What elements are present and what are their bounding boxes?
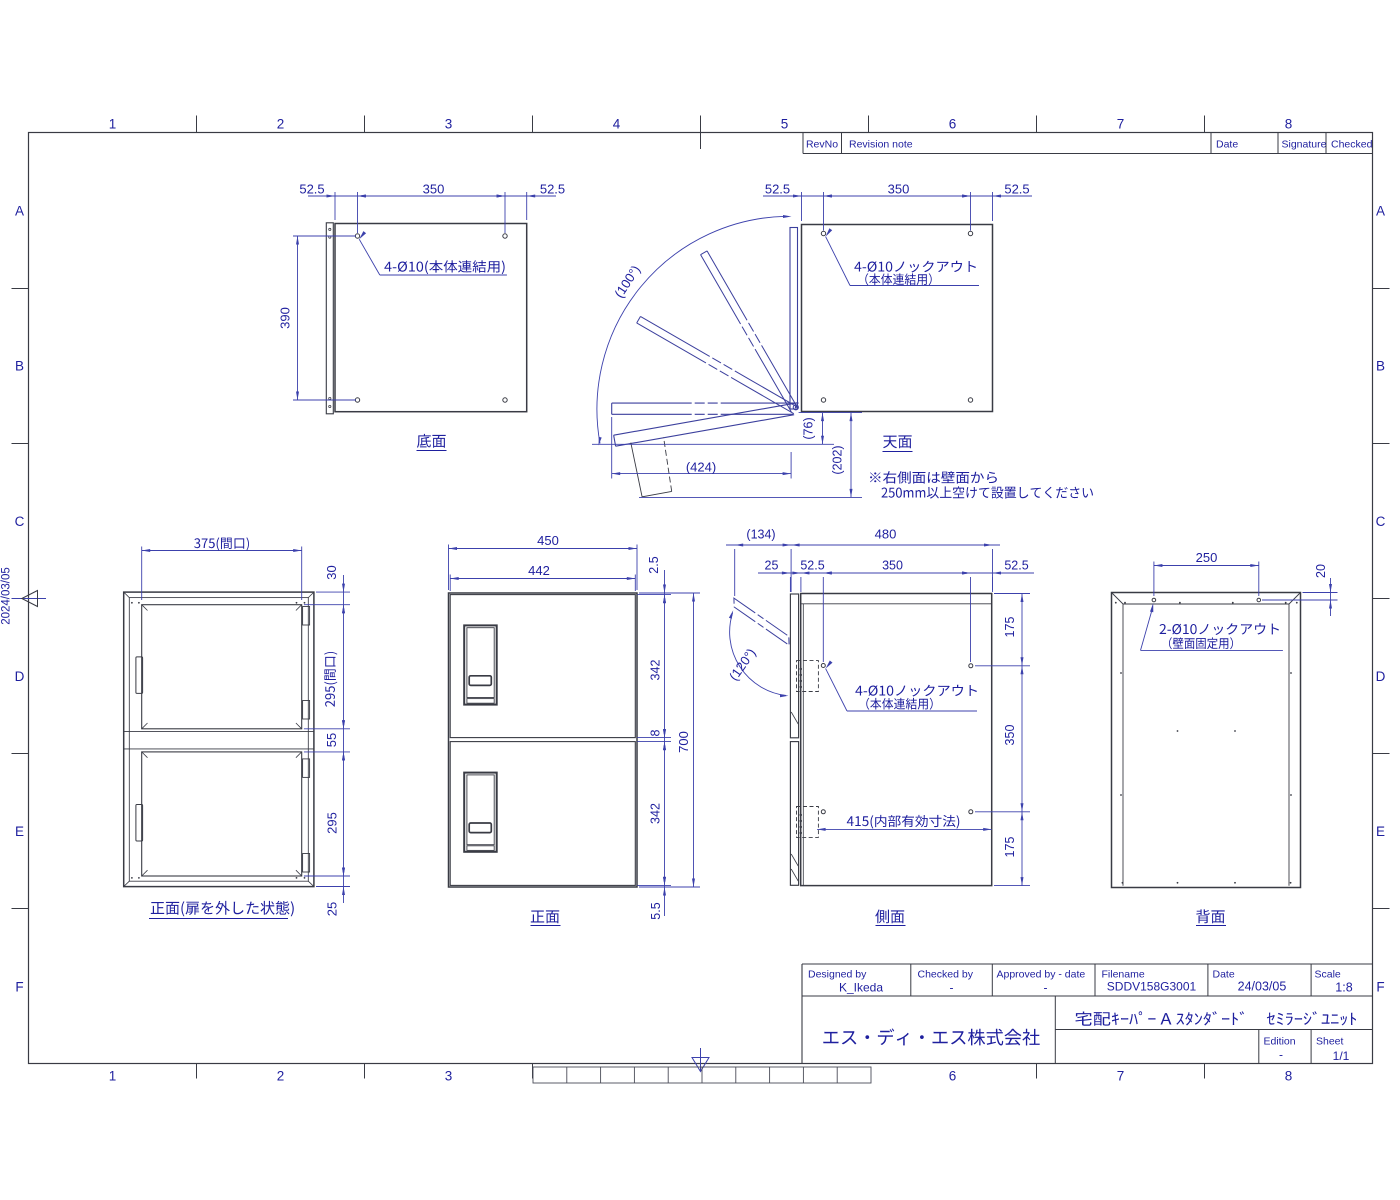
svg-text:342: 342 xyxy=(649,660,663,681)
svg-text:6: 6 xyxy=(949,117,957,132)
svg-text:A: A xyxy=(15,204,24,219)
svg-text:F: F xyxy=(15,979,23,994)
svg-text:5.5: 5.5 xyxy=(649,902,663,919)
svg-text:2.5: 2.5 xyxy=(647,556,661,573)
svg-text:-: - xyxy=(1279,1048,1283,1062)
svg-text:(424): (424) xyxy=(686,460,716,475)
svg-text:350: 350 xyxy=(888,182,910,197)
svg-text:6: 6 xyxy=(949,1069,957,1084)
svg-text:25: 25 xyxy=(765,559,779,573)
svg-text:Approved by - date: Approved by - date xyxy=(997,969,1086,981)
svg-text:1: 1 xyxy=(109,1069,117,1084)
svg-text:25: 25 xyxy=(325,902,340,916)
svg-text:B: B xyxy=(1376,359,1385,374)
svg-text:52.5: 52.5 xyxy=(1004,559,1028,573)
svg-text:(134): (134) xyxy=(746,528,775,542)
svg-text:175: 175 xyxy=(1003,617,1017,638)
svg-text:Checked by: Checked by xyxy=(918,969,974,981)
svg-text:20: 20 xyxy=(1314,564,1328,578)
svg-text:250: 250 xyxy=(1196,550,1218,565)
svg-text:B: B xyxy=(15,359,24,374)
svg-text:A: A xyxy=(1376,204,1385,219)
svg-text:8: 8 xyxy=(1285,1069,1293,1084)
svg-text:D: D xyxy=(15,669,25,684)
svg-text:Edition: Edition xyxy=(1264,1036,1296,1048)
svg-text:Checked: Checked xyxy=(1331,139,1373,151)
svg-text:RevNo: RevNo xyxy=(806,139,838,151)
svg-text:3: 3 xyxy=(445,117,453,132)
svg-text:E: E xyxy=(1376,824,1385,839)
svg-text:52.5: 52.5 xyxy=(1004,182,1029,197)
svg-text:-: - xyxy=(950,981,954,995)
svg-text:1:8: 1:8 xyxy=(1335,981,1352,995)
svg-text:8: 8 xyxy=(1285,117,1293,132)
svg-text:7: 7 xyxy=(1117,117,1125,132)
svg-text:52.5: 52.5 xyxy=(299,182,324,197)
svg-text:295: 295 xyxy=(325,812,340,834)
svg-text:1/1: 1/1 xyxy=(1333,1049,1350,1063)
svg-text:30: 30 xyxy=(324,565,339,579)
svg-text:Date: Date xyxy=(1216,139,1238,151)
svg-text:442: 442 xyxy=(528,563,550,578)
svg-text:SDDV158G3001: SDDV158G3001 xyxy=(1107,980,1197,994)
svg-text:350: 350 xyxy=(1003,725,1017,746)
svg-text:3: 3 xyxy=(445,1069,453,1084)
svg-text:450: 450 xyxy=(537,533,559,548)
svg-text:Designed by: Designed by xyxy=(808,969,867,981)
svg-text:5: 5 xyxy=(781,117,789,132)
svg-text:52.5: 52.5 xyxy=(540,182,565,197)
svg-text:52.5: 52.5 xyxy=(800,559,824,573)
svg-text:480: 480 xyxy=(875,527,897,542)
svg-text:(76): (76) xyxy=(802,417,816,439)
svg-text:Revision note: Revision note xyxy=(849,139,913,151)
svg-text:C: C xyxy=(1376,514,1386,529)
svg-text:342: 342 xyxy=(649,803,663,824)
svg-text:Signature: Signature xyxy=(1282,139,1327,151)
svg-text:Scale: Scale xyxy=(1315,969,1341,981)
svg-text:2: 2 xyxy=(277,1069,285,1084)
svg-text:24/03/05: 24/03/05 xyxy=(1238,980,1287,994)
svg-text:D: D xyxy=(1376,669,1386,684)
svg-text:K_Ikeda: K_Ikeda xyxy=(839,981,883,995)
svg-text:1: 1 xyxy=(109,117,117,132)
svg-text:8: 8 xyxy=(649,729,663,736)
svg-text:-: - xyxy=(1044,981,1048,995)
svg-text:4: 4 xyxy=(613,117,621,132)
svg-text:Sheet: Sheet xyxy=(1316,1036,1344,1048)
svg-text:Date: Date xyxy=(1213,969,1235,981)
svg-text:2024/03/05: 2024/03/05 xyxy=(1,567,13,625)
svg-text:350: 350 xyxy=(423,182,445,197)
svg-text:C: C xyxy=(15,514,25,529)
svg-text:390: 390 xyxy=(278,307,293,329)
svg-text:E: E xyxy=(15,824,24,839)
svg-text:350: 350 xyxy=(882,559,903,573)
svg-text:52.5: 52.5 xyxy=(765,182,790,197)
svg-text:55: 55 xyxy=(324,733,339,747)
svg-text:2: 2 xyxy=(277,117,285,132)
svg-text:(202): (202) xyxy=(831,445,845,474)
svg-text:700: 700 xyxy=(676,731,691,753)
svg-text:175: 175 xyxy=(1003,837,1017,858)
svg-text:F: F xyxy=(1376,979,1384,994)
svg-text:7: 7 xyxy=(1117,1069,1125,1084)
